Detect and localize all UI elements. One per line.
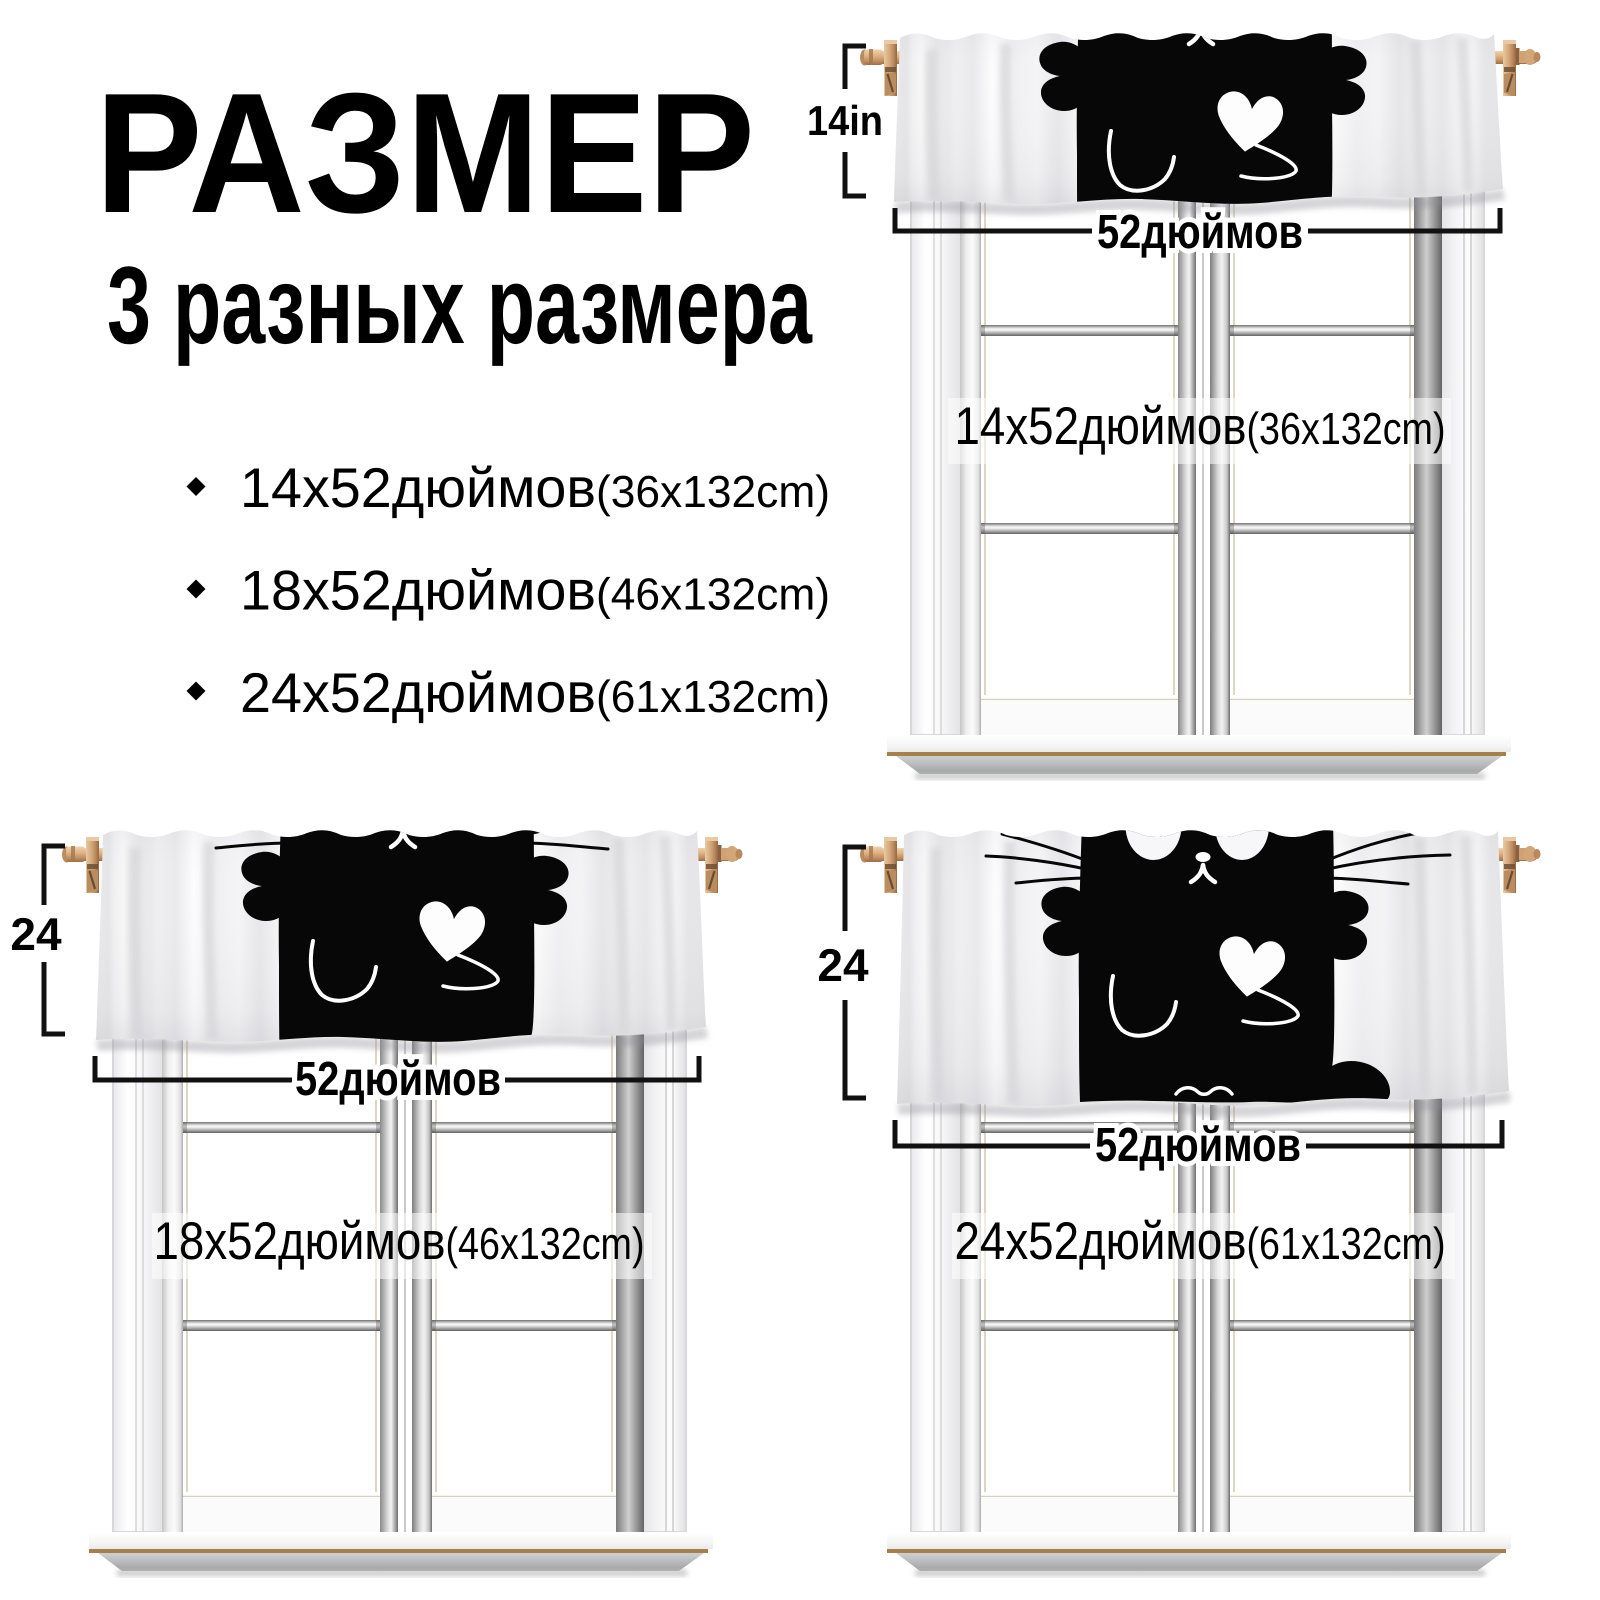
svg-text:24x52дюймов(61x132cm): 24x52дюймов(61x132cm) [955, 1212, 1446, 1271]
svg-text:3 разных размера: 3 разных размера [107, 244, 813, 367]
svg-text:24x52дюймов(61x132cm): 24x52дюймов(61x132cm) [240, 661, 830, 724]
svg-text:РАЗМЕР: РАЗМЕР [95, 58, 755, 249]
svg-text:18x52дюймов(46x132cm): 18x52дюймов(46x132cm) [240, 559, 830, 622]
svg-text:14in: 14in [807, 97, 883, 144]
svg-text:52дюймов: 52дюймов [295, 1053, 501, 1106]
svg-text:24: 24 [10, 908, 62, 960]
svg-text:52дюймов: 52дюймов [1095, 1119, 1301, 1172]
svg-text:14x52дюймов(36x132cm): 14x52дюймов(36x132cm) [240, 456, 830, 519]
svg-text:14x52дюймов(36x132cm): 14x52дюймов(36x132cm) [955, 397, 1446, 456]
svg-text:52дюймов: 52дюймов [1097, 206, 1303, 259]
svg-text:18x52дюймов(46x132cm): 18x52дюймов(46x132cm) [154, 1212, 645, 1271]
svg-text:24: 24 [817, 939, 869, 991]
